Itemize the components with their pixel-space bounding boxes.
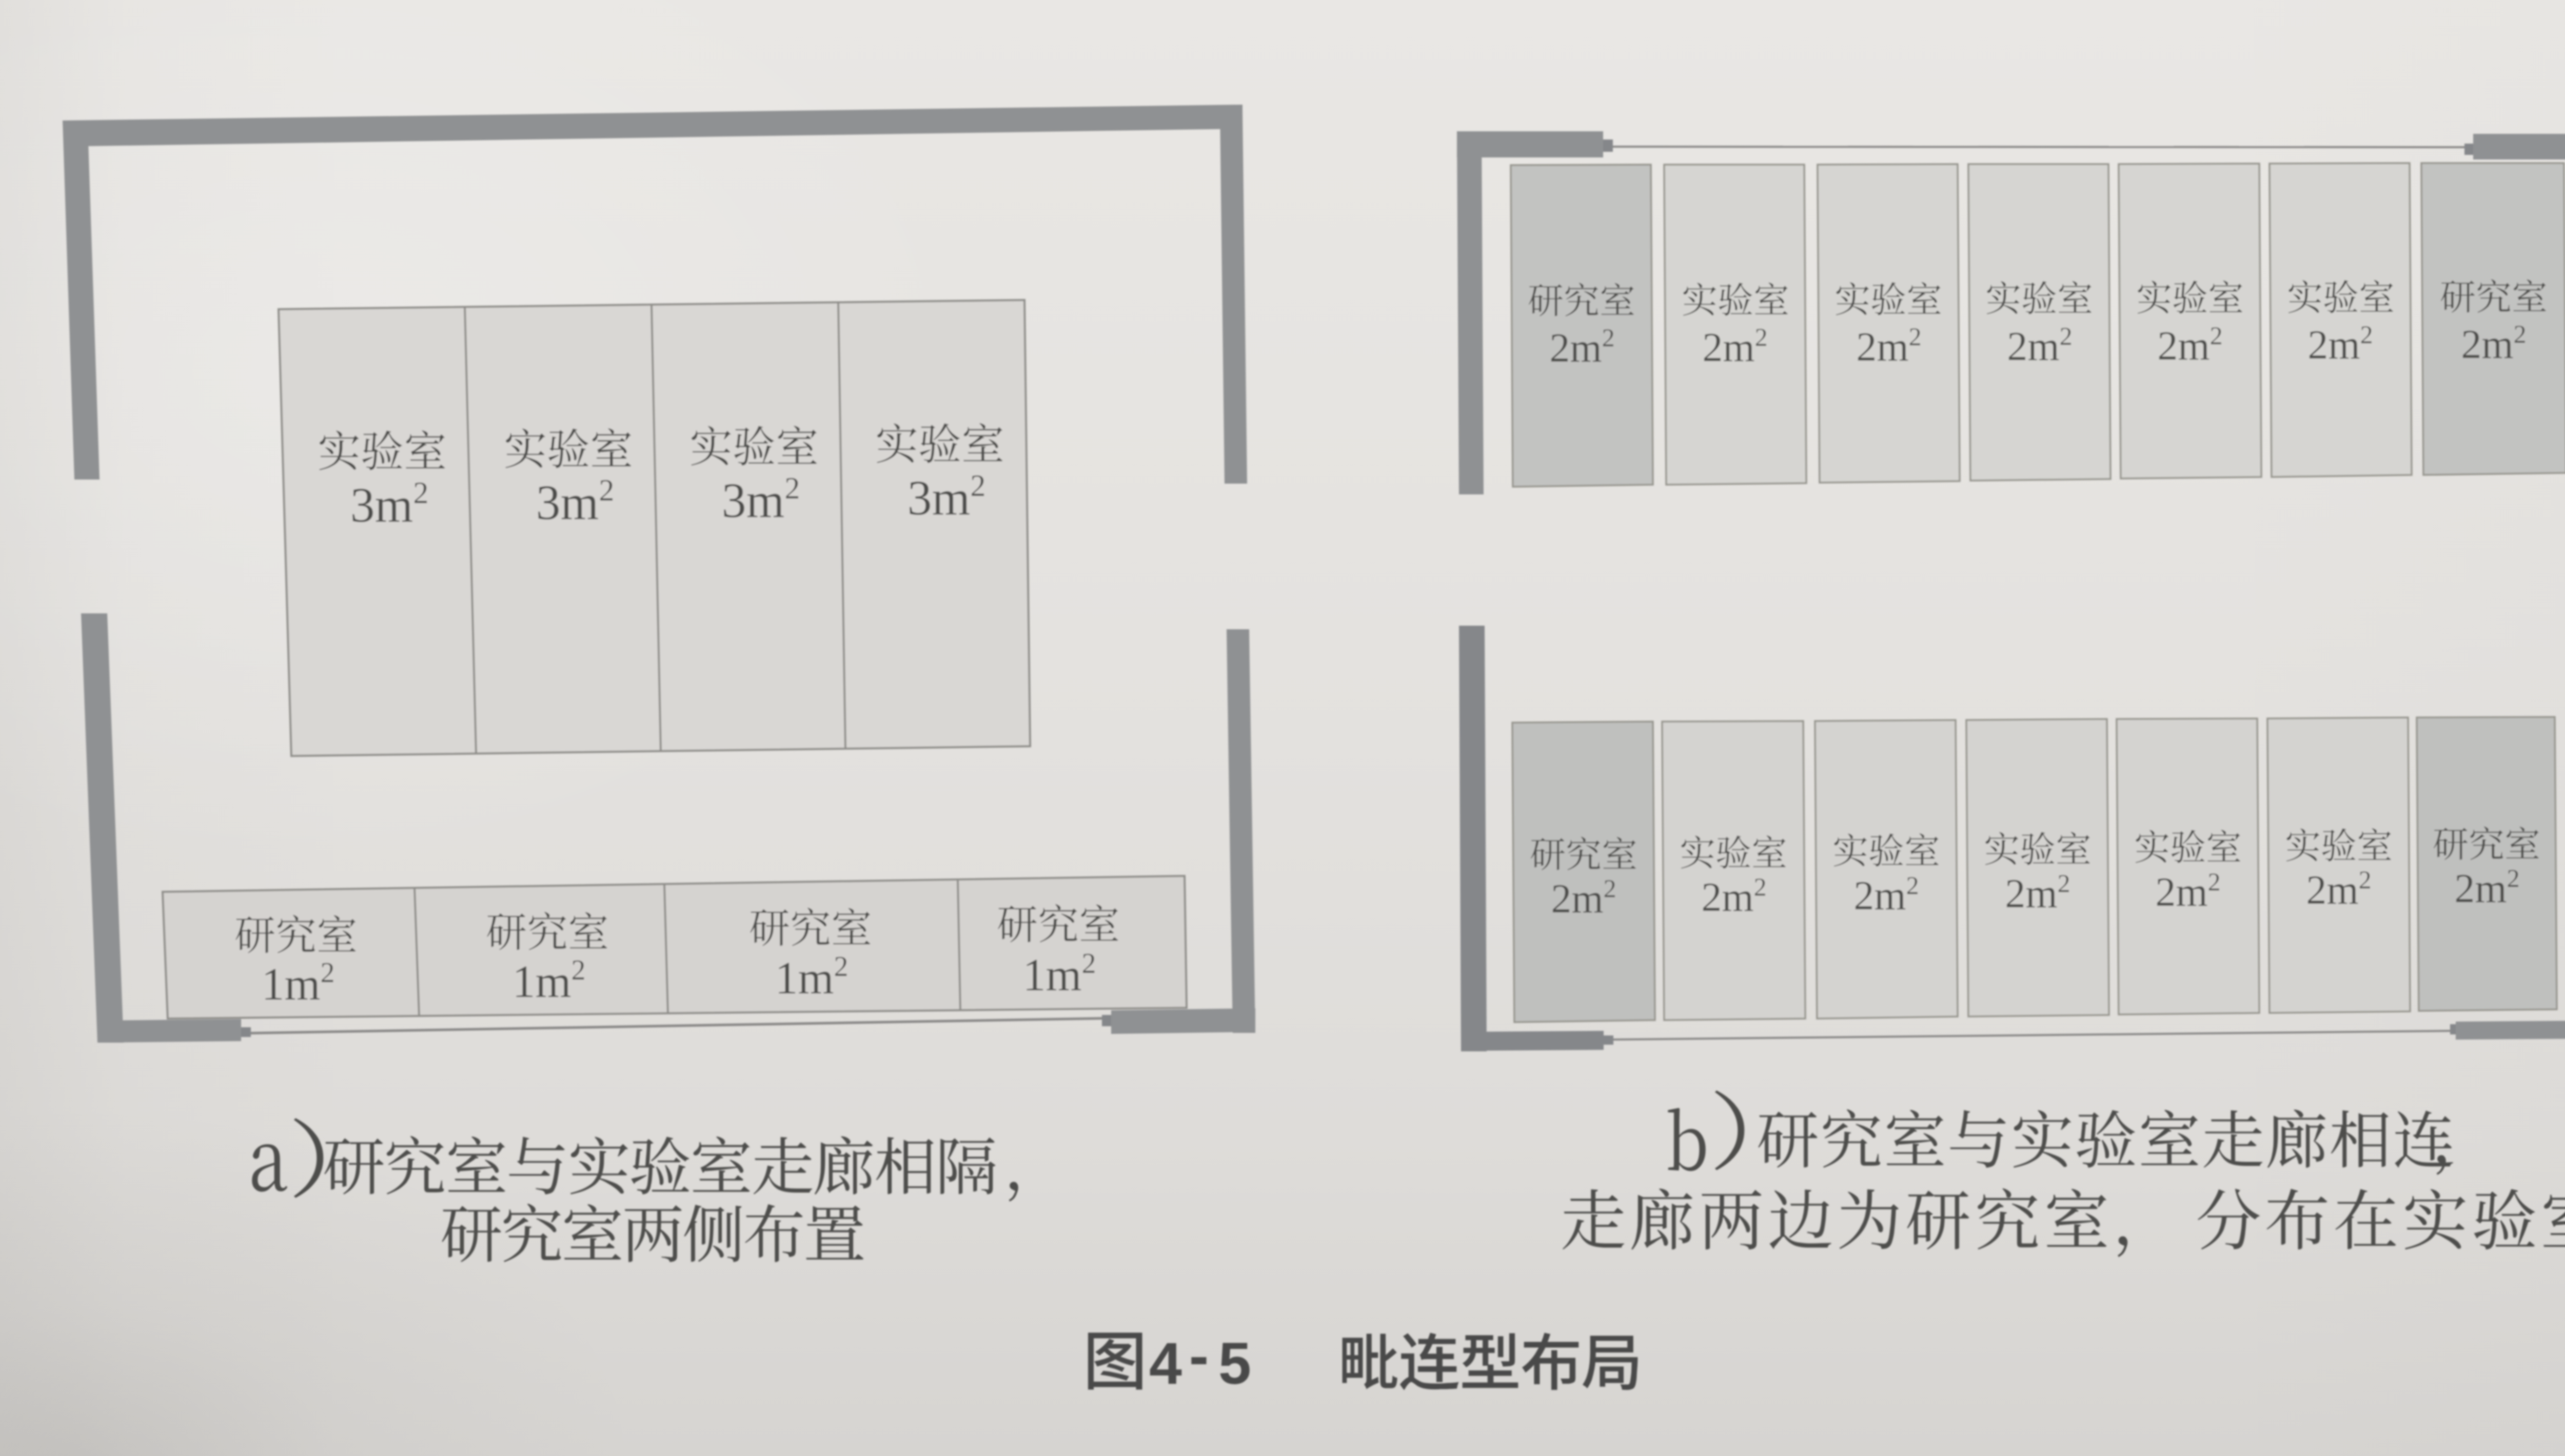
svg-text:5: 5 (1218, 1331, 1251, 1397)
svg-text:-: - (1189, 1323, 1209, 1389)
svg-text:4: 4 (1149, 1331, 1182, 1397)
